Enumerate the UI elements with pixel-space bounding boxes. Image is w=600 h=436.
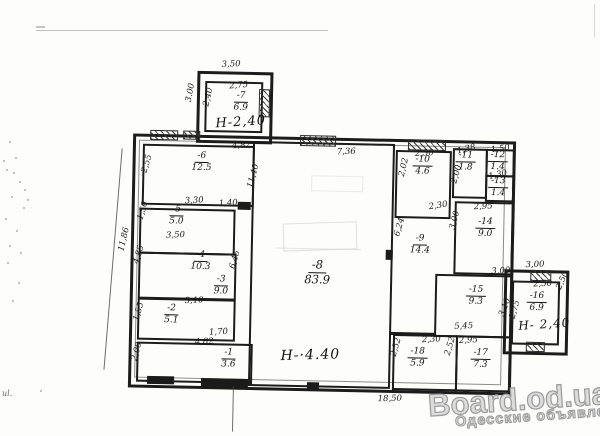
room-number: -17 [470,348,491,360]
floorplan-drawing: -76.9-612.5-55.0-410.3-39.0-25.1-13.6-88… [0,0,600,436]
room-number: -15 [466,284,487,296]
room-label-7: -76.9 [224,90,258,113]
room-label-17: -177.3 [463,347,497,370]
dimension-label: 2,30 [422,334,441,345]
room-label-8: -883.9 [296,258,339,287]
door-mark-bottom-2 [201,378,248,388]
dimension-label: 2,30 [415,148,434,159]
extension-line-left [103,148,122,369]
room-area: 9.0 [468,228,502,240]
room-label-15: -159.3 [459,284,493,307]
room-number: -14 [475,217,496,229]
door-mark-bottom-3 [307,382,319,390]
pencil-sketch-3 [311,175,363,192]
dimension-label: 5,45 [454,321,473,332]
room-area: 1.4 [481,188,515,200]
room-label-9: -914.4 [403,233,437,256]
room-number: -18 [407,346,428,358]
room-number: -2 [164,303,179,315]
dimension-label: 3,00 [525,260,544,271]
window-top-1 [150,130,178,141]
dimension-label: 3,50 [166,230,185,241]
room-area: 10.3 [183,261,217,273]
dimension-label: 2,75 [229,80,249,92]
room-number: -9 [413,233,428,245]
room-label-1: -13.6 [211,347,245,370]
dimension-label: 3,50 [222,59,241,70]
ceiling-height-label: Н-·4.40 [280,346,340,364]
dimension-label: 4,82 [195,337,214,348]
dimension-label: 2,50 [533,279,552,290]
room-area: 6.9 [520,302,554,314]
dimension-label: 2,95 [474,201,493,212]
dimension-label: 18,50 [378,394,403,405]
room-label-16: -166.9 [520,291,554,314]
room-label-3: -39.0 [204,274,238,297]
room-number: -16 [526,291,547,303]
room-area: 5.0 [159,216,193,228]
room-label-14: -149.0 [468,217,502,240]
room-label-6: -612.5 [184,151,218,174]
room-area: 6.9 [224,102,258,114]
scanned-floorplan-page: ul. [0,0,600,436]
room-number: -5 [169,204,184,216]
door-mark-hall-right [386,250,393,260]
room-area: 5.9 [400,358,434,370]
room-number: -1 [221,347,236,359]
room-label-4: -410.3 [183,250,217,273]
window-top-2 [183,131,200,140]
dimension-label: 11,86 [117,226,132,252]
room-area: 5.1 [154,315,188,327]
dimension-label: 3,10 [185,296,204,307]
dimension-label: 7,36 [337,147,356,158]
room-label-18: -185.9 [400,346,434,369]
room-number: -8 [309,258,327,273]
room-area: 3.6 [211,359,245,371]
window-annex-right-2 [526,342,545,352]
room-area: 9.0 [204,286,238,298]
room-area: 4.6 [405,166,439,178]
room-number: -7 [233,91,248,103]
room-label-2: -25.1 [154,303,188,326]
door-mark-corridor [238,202,251,210]
room-area: 14.4 [403,245,437,257]
dimension-label: 4,82 [232,140,252,151]
room-label-5: -55.0 [159,204,193,227]
dimension-label: 3,30 [185,195,204,206]
door-mark-bottom-1 [147,376,174,385]
dimension-label: 3,00 [491,266,510,277]
room-number: -4 [193,250,208,262]
window-top-3 [300,135,336,147]
room-number: -3 [214,274,229,286]
dimension-label: 3.00 [184,82,197,103]
extension-line-bottom [232,387,234,432]
room-area: 9.3 [459,296,493,308]
dimension-label: 2,95 [459,335,478,346]
room-area: 83.9 [296,273,338,288]
room-area: 12.5 [184,162,218,174]
room-number: -6 [194,151,209,163]
dimension-label: 1,40 [219,198,238,209]
room-area: 7.3 [463,359,497,371]
